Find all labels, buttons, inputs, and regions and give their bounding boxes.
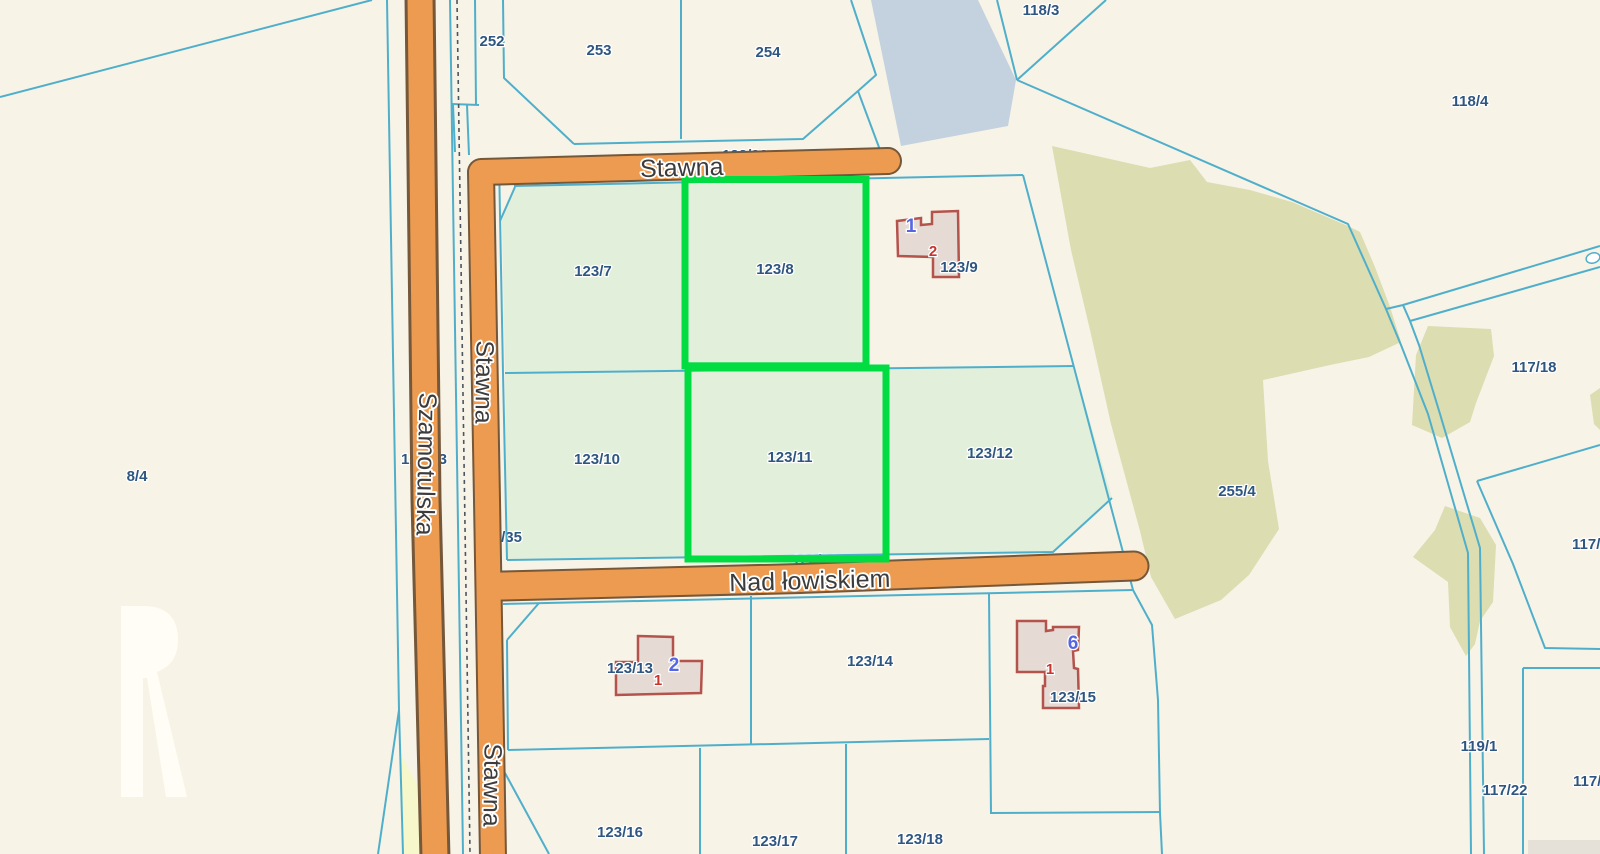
svg-text:8/4: 8/4 bbox=[127, 468, 149, 485]
svg-text:117/4: 117/4 bbox=[1572, 536, 1600, 553]
svg-text:255/4: 255/4 bbox=[1218, 483, 1256, 500]
svg-text:Stawna: Stawna bbox=[477, 743, 506, 827]
svg-text:Stawna: Stawna bbox=[469, 340, 498, 424]
svg-text:117/18: 117/18 bbox=[1511, 359, 1556, 376]
svg-text:2: 2 bbox=[929, 243, 937, 260]
svg-text:123/11: 123/11 bbox=[767, 449, 812, 466]
svg-text:123/14: 123/14 bbox=[847, 653, 894, 670]
svg-text:119/1: 119/1 bbox=[1461, 738, 1498, 755]
svg-text:Nad łowiskiem: Nad łowiskiem bbox=[729, 565, 891, 597]
svg-text:123/7: 123/7 bbox=[574, 263, 612, 280]
svg-text:123/9: 123/9 bbox=[940, 259, 978, 276]
svg-text:123/15: 123/15 bbox=[1050, 689, 1096, 706]
svg-text:2: 2 bbox=[669, 655, 680, 676]
svg-text:117/2: 117/2 bbox=[1573, 773, 1600, 790]
svg-text:118/4: 118/4 bbox=[1452, 93, 1489, 110]
svg-text:6: 6 bbox=[1068, 633, 1079, 654]
svg-text:123/16: 123/16 bbox=[597, 824, 643, 841]
svg-text:Stawna: Stawna bbox=[640, 153, 724, 183]
svg-text:1: 1 bbox=[906, 216, 917, 237]
svg-text:117/22: 117/22 bbox=[1482, 782, 1527, 799]
svg-text:1: 1 bbox=[1046, 661, 1054, 678]
svg-text:118/3: 118/3 bbox=[1023, 2, 1060, 19]
svg-text:254: 254 bbox=[755, 44, 781, 61]
svg-text:123/13: 123/13 bbox=[607, 660, 653, 677]
svg-text:123/18: 123/18 bbox=[897, 831, 943, 848]
svg-text:123/12: 123/12 bbox=[967, 445, 1013, 462]
svg-text:123/10: 123/10 bbox=[574, 451, 620, 468]
svg-text:123/8: 123/8 bbox=[756, 261, 794, 278]
svg-text:252: 252 bbox=[479, 33, 504, 50]
svg-text:123/17: 123/17 bbox=[752, 833, 798, 850]
svg-text:1: 1 bbox=[654, 672, 662, 689]
svg-text:253: 253 bbox=[586, 42, 611, 59]
svg-text:Szamotulska: Szamotulska bbox=[411, 392, 442, 536]
